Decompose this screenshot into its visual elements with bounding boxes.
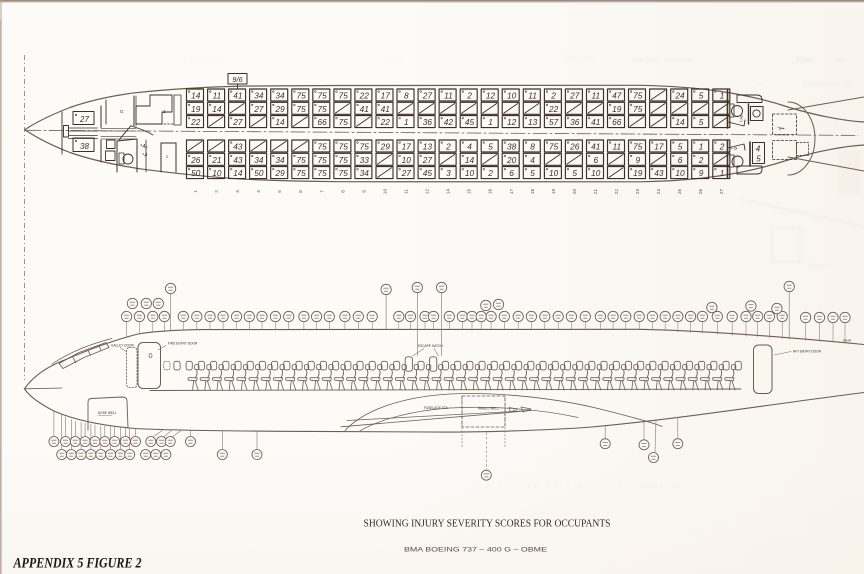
svg-text:21: 21 [211,155,221,165]
svg-text:4: 4 [467,142,472,152]
svg-text:FWD ENTRY DOOR: FWD ENTRY DOOR [168,342,198,346]
svg-text:75: 75 [339,117,349,127]
svg-text:11: 11 [444,91,453,101]
svg-text:16: 16 [488,189,493,195]
svg-text:75: 75 [633,142,643,152]
svg-text:5: 5 [756,155,761,164]
svg-text:75: 75 [339,168,349,178]
svg-text:75: 75 [339,142,349,152]
svg-text:12: 12 [507,117,517,127]
svg-text:REAR: REAR [843,339,852,343]
svg-text:10: 10 [402,155,412,165]
svg-text:2: 2 [466,91,472,101]
svg-text:3: 3 [235,190,240,193]
svg-text:9/6: 9/6 [232,75,243,84]
svg-text:5: 5 [277,190,282,193]
svg-text:18: 18 [530,189,535,195]
svg-text:10: 10 [383,189,388,195]
svg-text:9: 9 [699,168,704,178]
svg-text:APPENDIX 5 FIGURE 2: APPENDIX 5 FIGURE 2 [13,556,142,572]
svg-text:11: 11 [612,142,621,152]
svg-text:14: 14 [275,117,285,127]
svg-text:8: 8 [404,91,409,101]
svg-text:75: 75 [633,91,643,101]
svg-text:GROECbVLIRD: GROECbVLIRD [803,82,853,88]
svg-text:45: 45 [465,117,475,127]
svg-text:26: 26 [698,189,703,195]
svg-text:41: 41 [591,142,600,152]
svg-text:2: 2 [698,155,704,165]
svg-text:75: 75 [296,168,306,178]
svg-text:22: 22 [190,117,201,127]
svg-text:27: 27 [401,168,412,178]
svg-text:38: 38 [80,142,89,151]
svg-text:19: 19 [551,189,556,195]
svg-text:10: 10 [549,168,559,178]
svg-text:19: 19 [633,168,643,178]
svg-text:1: 1 [720,168,725,178]
svg-text:non anno ammo: non anno ammo [177,56,223,61]
svg-text:14: 14 [675,117,685,127]
svg-text:1: 1 [720,91,725,101]
svg-text:24: 24 [674,91,685,101]
svg-text:9: 9 [361,190,366,193]
svg-text:15: 15 [467,189,472,195]
svg-text:7: 7 [319,190,324,193]
svg-text:34: 34 [275,155,285,165]
svg-text:17: 17 [402,142,412,152]
svg-text:13: 13 [528,117,538,127]
svg-text:WHEEL WELL: WHEEL WELL [478,407,499,411]
svg-text:43: 43 [654,168,664,178]
svg-text:14: 14 [233,168,243,178]
svg-text:4: 4 [756,145,761,154]
svg-text:2: 2 [487,168,493,178]
svg-text:14: 14 [191,91,201,101]
svg-text:12: 12 [425,189,430,195]
svg-text:ESCAPE HATCH: ESCAPE HATCH [418,344,443,348]
svg-text:17: 17 [381,91,391,101]
svg-text:75: 75 [360,142,370,152]
svg-text:27: 27 [79,115,89,124]
svg-text:14: 14 [212,104,222,114]
svg-text:10: 10 [507,91,517,101]
svg-text:21: 21 [593,189,598,195]
svg-text:27: 27 [422,91,433,101]
svg-text:°9••: °9•• [777,126,785,131]
svg-text:38: 38 [507,142,517,152]
svg-text:75: 75 [339,91,349,101]
svg-text:23: 23 [635,189,640,195]
svg-text:75: 75 [296,104,306,114]
svg-text:66: 66 [612,117,622,127]
svg-text:6: 6 [509,168,514,178]
svg-text:25: 25 [677,189,682,195]
svg-text:5: 5 [678,142,683,152]
svg-text:45: 45 [423,168,433,178]
svg-text:41: 41 [591,117,600,127]
svg-text:aIHemIa HI: aIHemIa HI [809,103,847,109]
svg-text:27: 27 [569,91,580,101]
svg-text:6: 6 [298,190,303,193]
svg-text:11: 11 [591,91,600,101]
svg-text:6: 6 [593,155,598,165]
svg-text:75: 75 [317,91,327,101]
svg-text:1: 1 [404,117,409,127]
svg-text:43: 43 [233,142,243,152]
svg-text:3: 3 [446,168,451,178]
svg-text:2: 2 [719,142,725,152]
svg-text:41: 41 [360,104,369,114]
svg-text:11: 11 [213,91,222,101]
svg-text:4: 4 [530,155,535,165]
svg-text:29: 29 [274,168,285,178]
svg-text:GALLEY DOOR: GALLEY DOOR [111,344,134,348]
svg-text:an aman: an aman [378,56,403,61]
svg-text:°4: °4 [142,153,147,159]
svg-text:°4₂: °4₂ [140,144,148,150]
svg-text:ZAVI: ZAVI [796,57,815,64]
svg-text:10: 10 [675,168,685,178]
svg-text:27: 27 [253,104,264,114]
svg-text:10: 10 [465,168,475,178]
svg-text:29: 29 [274,104,285,114]
svg-text:34: 34 [254,155,264,165]
svg-text:5: 5 [488,142,493,152]
svg-text:NMOHZ YAUILMI: NMOHZ YAUILMI [632,57,696,64]
svg-text:22: 22 [548,104,559,114]
svg-text:2: 2 [550,91,556,101]
svg-text:10: 10 [591,168,601,178]
svg-text:na: na [756,82,764,88]
svg-text:6: 6 [678,155,683,165]
svg-text:26: 26 [190,155,201,165]
svg-text:AFT ENTRY DOOR: AFT ENTRY DOOR [793,350,822,354]
svg-text:12: 12 [486,91,496,101]
svg-text:22: 22 [359,91,370,101]
svg-text:9: 9 [635,155,640,165]
svg-text:o a nano am o n a mao: o a nano am o n a mao no a o ammo an [477,484,683,490]
svg-text:G: G [120,109,124,114]
svg-text:aaoa nna: aaoa nna [565,54,596,60]
svg-text:5: 5 [530,168,535,178]
svg-text:75: 75 [317,142,327,152]
svg-text:34: 34 [360,168,370,178]
svg-text:75: 75 [317,155,327,165]
svg-text:20: 20 [572,189,577,195]
svg-text:75: 75 [633,104,643,114]
svg-text:na anna: na anna [809,264,831,270]
svg-text:50: 50 [254,168,264,178]
svg-text:24: 24 [656,189,661,195]
svg-text:BMA BOEING 737 – 400 G – OBME: BMA BOEING 737 – 400 G – OBME [404,547,548,554]
svg-text:5: 5 [699,91,704,101]
svg-text:19: 19 [191,104,201,114]
svg-text:66: 66 [317,117,327,127]
svg-text:17: 17 [509,189,514,195]
svg-text:11: 11 [528,91,537,101]
svg-text:10: 10 [212,168,222,178]
svg-text:11: 11 [404,189,409,194]
svg-text:43: 43 [233,155,243,165]
svg-text:27: 27 [422,155,433,165]
svg-text:8: 8 [340,190,345,193]
svg-text:75: 75 [339,155,349,165]
svg-text:47: 47 [612,91,622,101]
svg-text:75: 75 [549,142,559,152]
svg-text:FUSELAGE STA: FUSELAGE STA [424,406,449,410]
svg-text:20: 20 [506,155,517,165]
svg-text:2: 2 [214,190,219,193]
svg-text:75: 75 [317,168,327,178]
svg-text:5: 5 [572,168,577,178]
svg-text:19: 19 [612,104,622,114]
svg-text:36: 36 [423,117,433,127]
svg-text:14: 14 [465,155,475,165]
svg-text:27: 27 [232,117,243,127]
svg-text:75: 75 [296,155,306,165]
svg-text:42: 42 [444,117,454,127]
svg-text:1: 1 [488,117,493,127]
svg-text:IAV: IAV [834,58,846,64]
svg-text:34: 34 [275,91,285,101]
svg-text:36: 36 [570,117,580,127]
svg-text:41: 41 [233,91,242,101]
svg-text:22: 22 [614,189,619,195]
svg-text:27: 27 [719,189,724,195]
svg-text:1: 1 [699,142,704,152]
svg-text:4: 4 [256,190,261,193]
svg-text:34: 34 [254,91,264,101]
svg-text:8: 8 [530,142,535,152]
svg-text:13: 13 [423,142,433,152]
svg-text:1: 1 [193,190,198,193]
svg-text:33: 33 [360,155,370,165]
svg-text:75: 75 [296,91,306,101]
svg-text:NOSE WELL: NOSE WELL [98,411,117,415]
svg-text:SHOWING INJURY SEVERITY SCORES: SHOWING INJURY SEVERITY SCORES FOR OCCUP… [364,519,611,530]
svg-text:41: 41 [381,104,390,114]
svg-text:14: 14 [446,189,451,195]
svg-text:50: 50 [191,168,201,178]
svg-text:57: 57 [549,117,559,127]
svg-text:75: 75 [317,104,327,114]
svg-text:2: 2 [445,142,451,152]
svg-text:29: 29 [380,142,391,152]
svg-text:22: 22 [380,117,391,127]
svg-text:17: 17 [654,142,664,152]
svg-text:26: 26 [569,142,580,152]
svg-text:5: 5 [699,117,704,127]
